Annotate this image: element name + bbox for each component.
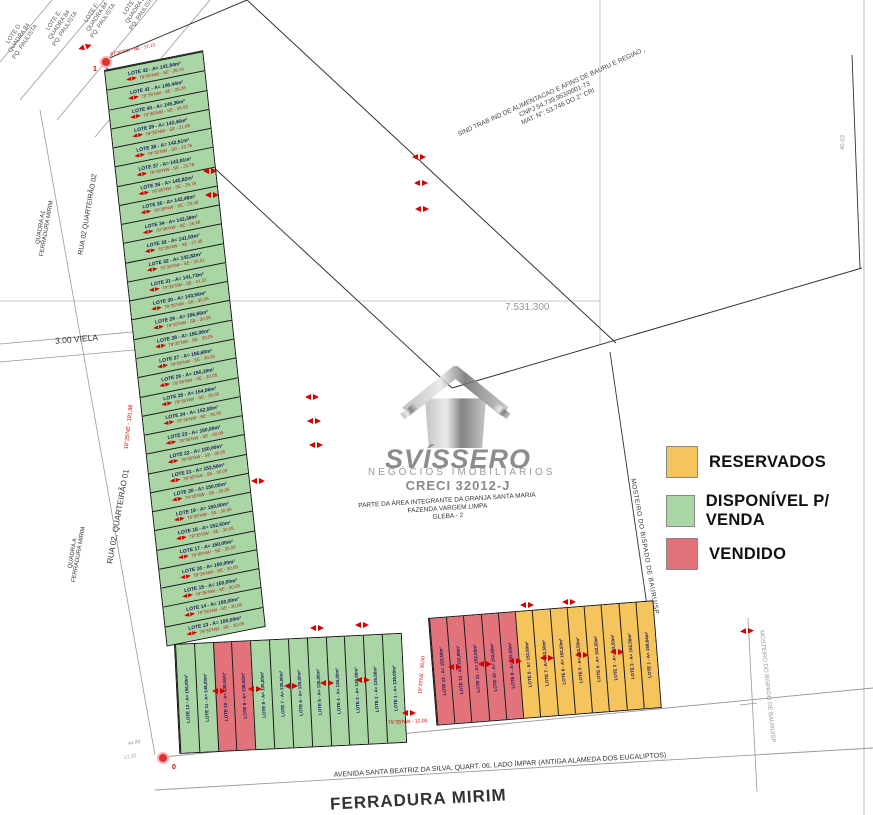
dimension-arrows-icon bbox=[412, 154, 426, 160]
dimension-arrows-icon bbox=[186, 631, 197, 638]
lot-label: LOTE 1 - A= 158,64m² bbox=[644, 632, 653, 678]
lot-label: LOTE 8 - A= 152,50m² bbox=[524, 641, 533, 687]
dimension-arrows-icon bbox=[540, 655, 554, 661]
lot-label: LOTE 1 - A= 138,00m² bbox=[391, 665, 398, 711]
dimension-arrows-icon bbox=[310, 625, 324, 631]
dimension-arrows-icon bbox=[174, 516, 185, 523]
dimension-arrows-icon bbox=[149, 286, 160, 293]
dimension-arrows-icon bbox=[132, 133, 143, 140]
dimension-arrows-icon bbox=[740, 628, 754, 635]
dimension-arrows-icon bbox=[320, 680, 334, 686]
lot-label: LOTE 5 - A= 135,00m² bbox=[316, 669, 323, 715]
legend-label-available: DISPONÍVEL P/ VENDA bbox=[706, 492, 873, 530]
legend-swatch-sold bbox=[666, 538, 698, 570]
legend-swatch-reserved bbox=[666, 446, 698, 478]
dimension-arrows-icon bbox=[178, 554, 189, 561]
survey-point-1-marker bbox=[100, 56, 112, 68]
dimension-arrows-icon bbox=[168, 458, 179, 465]
dimension-arrows-icon bbox=[137, 171, 148, 178]
lot-label: LOTE 12 - A= 156,00m² bbox=[184, 674, 191, 723]
dimension-arrows-icon bbox=[182, 592, 193, 599]
dimension-arrows-icon bbox=[151, 305, 162, 312]
lot-label: LOTE 2 - A= 135,00m² bbox=[372, 666, 379, 712]
dimension-arrows-icon bbox=[184, 611, 195, 618]
lot-label: LOTE 6 - A= 135,00m² bbox=[297, 670, 304, 716]
lot-label: LOTE 4 - A= 135,00m² bbox=[334, 668, 341, 714]
dimension-arrows-icon bbox=[128, 94, 139, 101]
dimension-arrows-icon bbox=[134, 152, 145, 159]
dimension-arrows-icon bbox=[478, 661, 492, 667]
lot-label: LOTE 2 - A= 152,50m² bbox=[627, 633, 636, 679]
dimension-arrows-icon bbox=[143, 228, 154, 235]
house-logo-icon bbox=[398, 366, 513, 448]
lot-label: LOTE 3 - A= 152,50m² bbox=[610, 634, 619, 680]
dimension-arrows-icon bbox=[203, 168, 217, 174]
legend-item-vendido: VENDIDO bbox=[666, 538, 786, 570]
dimension-arrows-icon bbox=[610, 649, 624, 655]
dimension-arrows-icon bbox=[402, 710, 416, 716]
dimension-label-right: 40,03 bbox=[840, 135, 847, 150]
dimension-arrows-icon bbox=[448, 664, 462, 670]
dimension-arrows-icon bbox=[130, 114, 141, 121]
legend-label-reserved: RESERVADOS bbox=[709, 453, 826, 472]
lot-cell[interactable]: LOTE 1 - A= 138,00m² bbox=[382, 634, 406, 743]
dimension-arrows-icon bbox=[164, 420, 175, 427]
quadra-bottom-left-block: LOTE 12 - A= 156,00m² LOTE 11 - A= 148,0… bbox=[174, 633, 407, 754]
dimension-arrows-icon bbox=[251, 478, 265, 484]
dimension-arrows-icon bbox=[170, 477, 181, 484]
dimension-arrows-icon bbox=[305, 394, 319, 400]
dimension-arrows-icon bbox=[520, 602, 534, 608]
dimension-arrows-icon bbox=[508, 658, 522, 664]
legend-swatch-available bbox=[666, 495, 695, 527]
lot-label: LOTE 13 - A= 152,50m² bbox=[438, 647, 447, 696]
dimension-arrows-icon bbox=[415, 206, 429, 212]
lot-label: LOTE 8 - A= 135,00m² bbox=[259, 672, 266, 718]
dimension-arrows-icon bbox=[153, 324, 164, 331]
dimension-arrows-icon bbox=[562, 599, 576, 605]
dimension-arrows-icon bbox=[155, 343, 166, 350]
dimension-arrows-icon bbox=[172, 497, 183, 504]
survey-point-0-marker bbox=[157, 752, 169, 764]
lot-label: LOTE 9 - A= 152,50m² bbox=[507, 643, 516, 689]
dimension-arrows-icon bbox=[307, 418, 321, 424]
dimension-arrows-icon bbox=[284, 683, 298, 689]
dimension-arrows-icon bbox=[159, 382, 170, 389]
lot-label: LOTE 3 - A= 135,00m² bbox=[353, 667, 360, 713]
lot-label: LOTE 7 - A= 135,00m² bbox=[278, 671, 285, 717]
lot-label: LOTE 5 - A= 152,50m² bbox=[575, 637, 584, 683]
dimension-arrows-icon bbox=[141, 209, 152, 216]
dimension-arrows-icon bbox=[356, 677, 370, 683]
lot-label: LOTE 11 - A= 152,50m² bbox=[472, 644, 481, 692]
dimension-arrows-icon bbox=[126, 75, 137, 82]
lot-label: LOTE 4 - A= 152,50m² bbox=[593, 636, 602, 682]
lot-label: LOTE 10 - A= 138,50m² bbox=[222, 672, 229, 721]
dimension-arrows-icon bbox=[166, 439, 177, 446]
quadra-bottom-right-block: LOTE 13 - A= 152,50m² LOTE 12 - A= 152,5… bbox=[428, 600, 662, 725]
legend-item-disponivel: DISPONÍVEL P/ VENDA bbox=[666, 492, 873, 530]
dimension-arrows-icon bbox=[309, 442, 323, 448]
lot-label: LOTE 11 - A= 148,00m² bbox=[203, 673, 210, 721]
dimension-arrows-icon bbox=[205, 192, 219, 198]
utm-coordinate-label: 7.531.300 bbox=[505, 302, 550, 313]
dimension-arrows-icon bbox=[145, 248, 156, 255]
legend-label-sold: VENDIDO bbox=[709, 545, 786, 564]
dimension-arrows-icon bbox=[212, 688, 226, 694]
watermark-subtitle: NEGÓCIOS IMOBILIÁRIOS bbox=[368, 467, 548, 478]
dimension-arrows-icon bbox=[139, 190, 150, 197]
dimension-arrows-icon bbox=[248, 686, 262, 692]
dimension-arrows-icon bbox=[176, 535, 187, 542]
dimension-arrows-icon bbox=[414, 180, 428, 186]
dimension-arrows-icon bbox=[575, 652, 589, 658]
watermark-creci: CRECI 32012-J bbox=[368, 478, 548, 493]
lot-label: LOTE 7 - A= 152,50m² bbox=[541, 640, 550, 686]
dimension-arrows-icon bbox=[157, 362, 168, 369]
dimension-arrows-icon bbox=[162, 401, 173, 408]
lot-label: LOTE 9 - A= 138,50m² bbox=[240, 673, 247, 719]
legend-item-reservados: RESERVADOS bbox=[666, 446, 826, 478]
survey-point-1-label: 1 bbox=[93, 66, 97, 73]
dimension-arrows-icon bbox=[147, 267, 158, 274]
dimension-arrows-icon bbox=[355, 622, 369, 628]
dimension-arrows-icon bbox=[180, 573, 191, 580]
site-plan-map: LOTE 42 - A= 141,94m² 79°35'NW - SE - 28… bbox=[0, 0, 873, 815]
survey-point-0-label: 0 bbox=[172, 764, 176, 771]
lot-label: LOTE 6 - A= 152,50m² bbox=[558, 638, 567, 684]
